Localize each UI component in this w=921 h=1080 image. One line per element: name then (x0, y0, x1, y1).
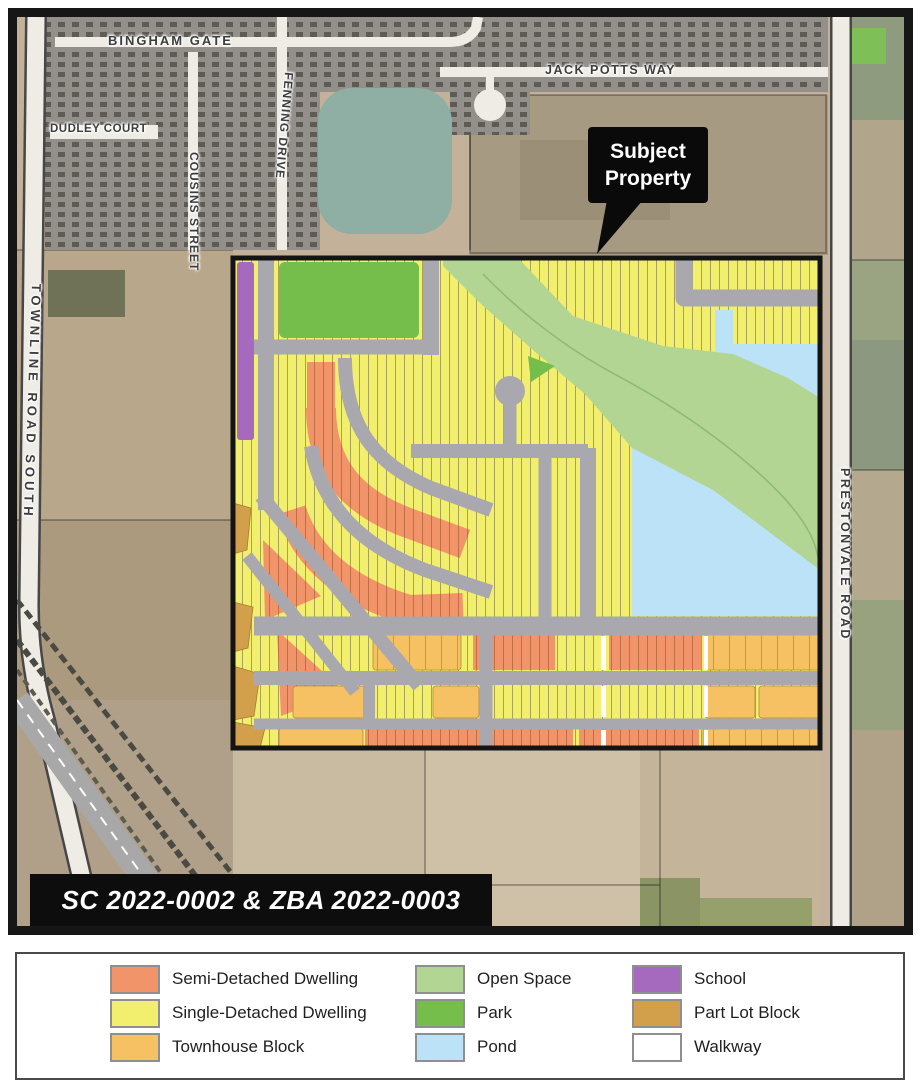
legend-label-part-lot: Part Lot Block (694, 1003, 800, 1023)
legend-item-walkway: Walkway (632, 1032, 761, 1062)
street-label-prestonvale-road: PRESTONVALE ROAD (838, 468, 852, 641)
cul-de-sac (474, 89, 506, 121)
legend-label-pond: Pond (477, 1037, 517, 1057)
legend-swatch-townhouse (110, 1033, 160, 1062)
existing-pond (318, 88, 452, 234)
legend-label-semi-detached: Semi-Detached Dwelling (172, 969, 358, 989)
legend-item-townhouse: Townhouse Block (110, 1032, 304, 1062)
legend-label-open-space: Open Space (477, 969, 572, 989)
legend-swatch-single-detached (110, 999, 160, 1028)
legend-item-pond: Pond (415, 1032, 517, 1062)
legend-label-single-detached: Single-Detached Dwelling (172, 1003, 367, 1023)
legend-item-single-detached: Single-Detached Dwelling (110, 998, 367, 1028)
legend-item-part-lot: Part Lot Block (632, 998, 800, 1028)
legend-label-park: Park (477, 1003, 512, 1023)
street-label-bingham-gate: BINGHAM GATE (108, 33, 233, 48)
site-plan-figure: BINGHAM GATE JACK POTTS WAY DUDLEY COURT… (0, 0, 921, 1080)
legend-swatch-part-lot (632, 999, 682, 1028)
cul-de-sac-road (495, 376, 525, 406)
aerial-photo (17, 17, 904, 935)
park-block (279, 262, 419, 338)
case-number-label: SC 2022-0002 & ZBA 2022-0003 (30, 874, 492, 926)
school-block (237, 262, 254, 440)
street-label-jack-potts-way: JACK POTTS WAY (545, 63, 676, 77)
legend-label-school: School (694, 969, 746, 989)
legend-label-townhouse: Townhouse Block (172, 1037, 304, 1057)
callout-line-1: Subject (610, 138, 686, 165)
street-label-dudley-court: DUDLEY COURT (50, 123, 147, 135)
subject-property-callout: Subject Property (588, 127, 708, 203)
street-label-cousins-street: COUSINS STREET (187, 152, 201, 271)
legend-swatch-park (415, 999, 465, 1028)
legend-swatch-semi-detached (110, 965, 160, 994)
legend-item-semi-detached: Semi-Detached Dwelling (110, 964, 358, 994)
legend: Semi-Detached Dwelling Single-Detached D… (15, 952, 905, 1080)
plan-overlay (233, 258, 820, 748)
callout-line-2: Property (605, 165, 691, 192)
legend-swatch-open-space (415, 965, 465, 994)
legend-item-park: Park (415, 998, 512, 1028)
legend-label-walkway: Walkway (694, 1037, 761, 1057)
legend-item-school: School (632, 964, 746, 994)
legend-item-open-space: Open Space (415, 964, 572, 994)
legend-swatch-school (632, 965, 682, 994)
legend-swatch-pond (415, 1033, 465, 1062)
legend-swatch-walkway (632, 1033, 682, 1062)
